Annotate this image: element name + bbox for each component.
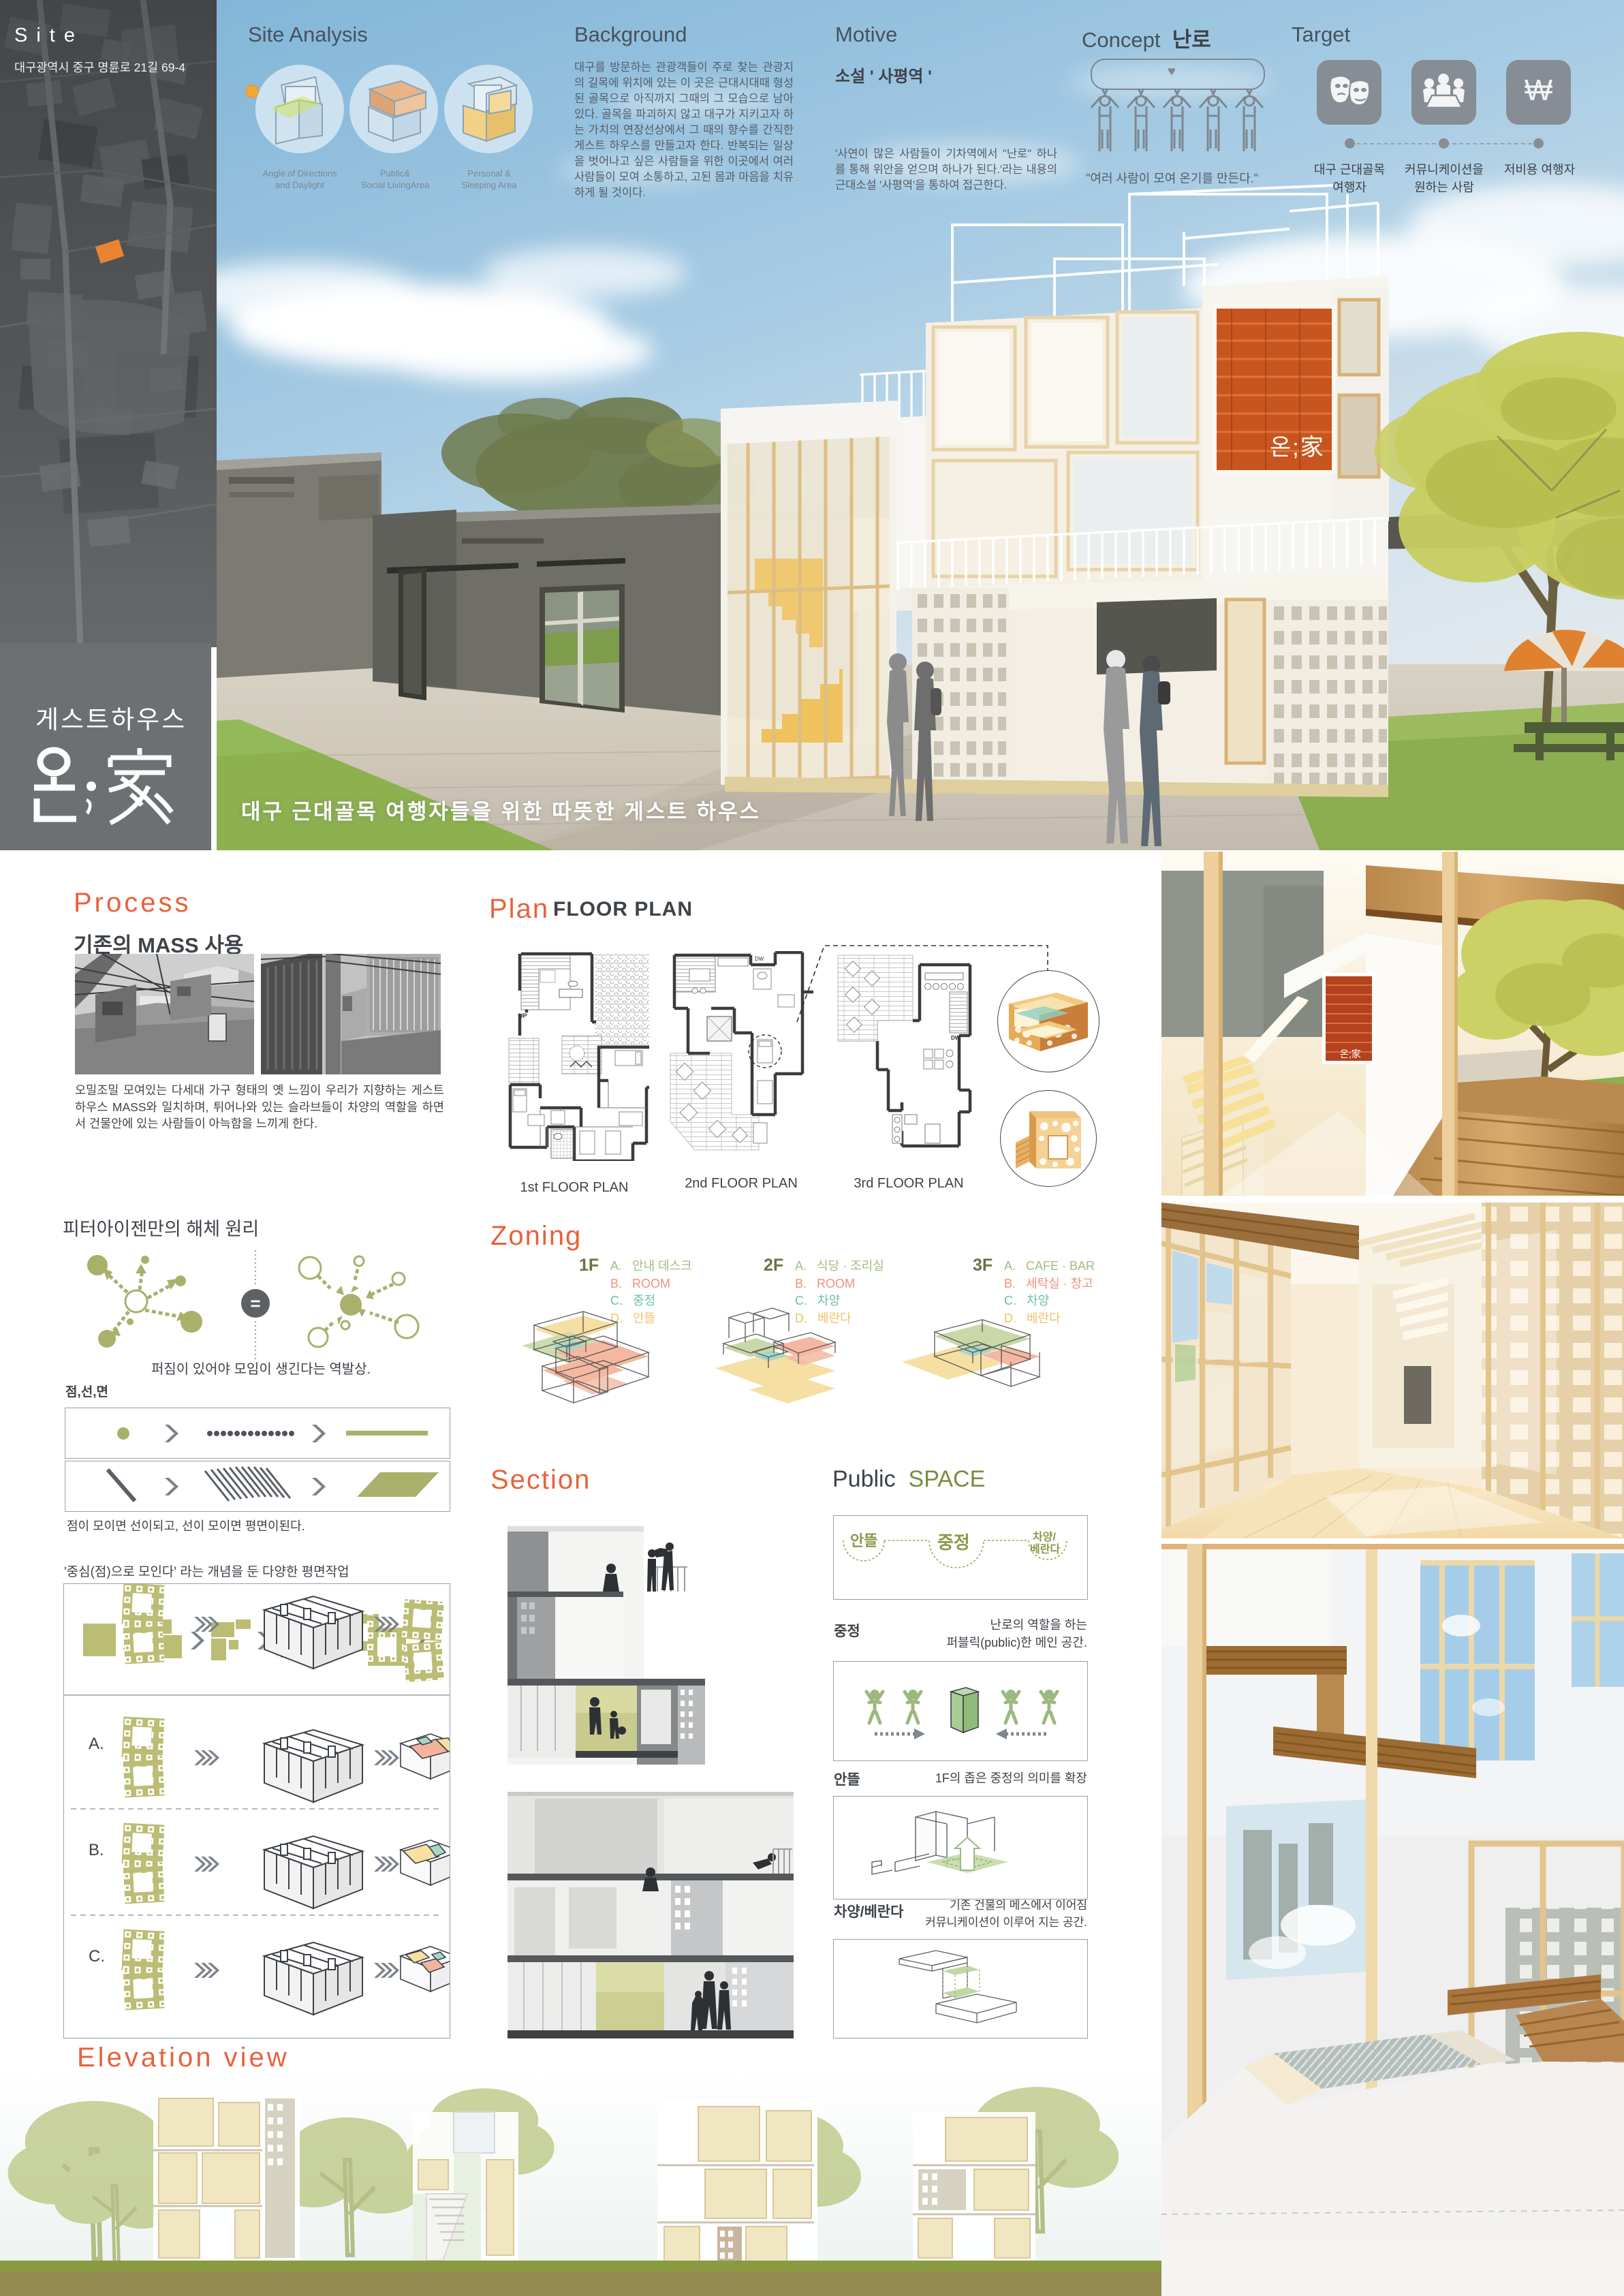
svg-text:온;家: 온;家 [1340,1049,1361,1059]
svg-text:온;家: 온;家 [1270,435,1325,461]
svg-text:B.: B. [89,1841,104,1859]
svg-text:=: = [250,1293,260,1314]
svg-text:A.: A. [89,1735,104,1753]
svg-text:안뜰: 안뜰 [850,1532,877,1549]
svg-text:C.: C. [89,1947,105,1966]
svg-text:베란다: 베란다 [1030,1543,1060,1555]
svg-text:DW: DW [951,1035,961,1041]
svg-text:UP: UP [518,1012,527,1019]
svg-text:중정: 중정 [937,1532,970,1553]
svg-text:차양/: 차양/ [1033,1531,1056,1543]
svg-text:DW: DW [755,956,764,962]
